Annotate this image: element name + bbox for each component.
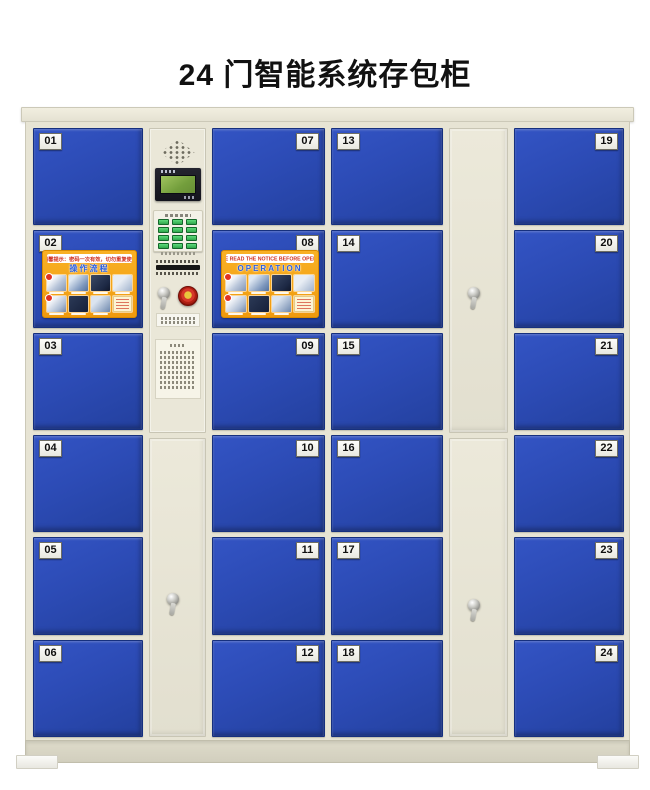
door-number-plate: 20: [595, 235, 618, 252]
sticker-step-grid: [226, 275, 314, 312]
locker-door-07: 07: [212, 128, 325, 225]
door-number-plate: 17: [337, 542, 360, 559]
key-lock-icon: [167, 593, 179, 605]
locker-cabinet: 0102温馨提示：密码一次有效，切勿重复使用操作流程030405060708PL…: [25, 107, 630, 763]
door-number-plate: 18: [337, 645, 360, 662]
keypad-caption-text: [165, 214, 191, 217]
numeric-keypad: [153, 210, 203, 252]
sticker-title: OPERATION: [226, 264, 314, 274]
panel-key-lock-icon: [158, 287, 170, 299]
locker-door-23: 23: [514, 537, 624, 634]
lock-and-button-row: [156, 283, 200, 313]
barcode-text-line: [156, 260, 200, 263]
notice-text-line: [160, 381, 196, 384]
sticker-notice-tile: [294, 296, 314, 312]
door-number-plate: 07: [296, 133, 319, 150]
locker-column-13-18: 131415161718: [328, 128, 446, 737]
control-column-lower-door: [149, 438, 206, 737]
sticker-step-tile: [249, 275, 269, 291]
sticker-notice-tile: [113, 296, 132, 312]
notice-text-line: [160, 386, 196, 389]
step-badge-icon: [224, 273, 232, 281]
service-hotline-label: [156, 313, 200, 327]
sticker-title: 操作流程: [47, 264, 132, 274]
locker-door-20: 20: [514, 230, 624, 327]
keypad-key: [172, 243, 183, 249]
instruction-sticker: 温馨提示：密码一次有效，切勿重复使用操作流程: [42, 250, 137, 317]
door-number-plate: 21: [595, 338, 618, 355]
barcode-text-line: [156, 272, 200, 275]
notice-text-line: [160, 371, 196, 374]
control-panel: [149, 128, 206, 433]
locker-door-06: 06: [33, 640, 143, 737]
locker-door-02: 02温馨提示：密码一次有效，切勿重复使用操作流程: [33, 230, 143, 327]
door-number-plate: 24: [595, 645, 618, 662]
usage-notice-label: [155, 339, 201, 399]
locker-door-05: 05: [33, 537, 143, 634]
door-number-plate: 15: [337, 338, 360, 355]
sticker-step-tile: [272, 296, 292, 312]
locker-door-22: 22: [514, 435, 624, 532]
sticker-step-tile: [47, 275, 66, 291]
sticker-header: 温馨提示：密码一次有效，切勿重复使用: [47, 254, 132, 263]
locker-column-01-06: 0102温馨提示：密码一次有效，切勿重复使用操作流程03040506: [30, 128, 146, 737]
keypad-key: [158, 235, 169, 241]
locker-door-19: 19: [514, 128, 624, 225]
service-text-line: [161, 317, 195, 320]
key-lock-icon: [468, 599, 480, 611]
door-number-plate: 22: [595, 440, 618, 457]
door-number-plate: 04: [39, 440, 62, 457]
keypad-key: [158, 227, 169, 233]
emergency-stop-button: [178, 286, 198, 306]
cabinet-foot-left: [16, 755, 58, 769]
sticker-step-tile: [249, 296, 269, 312]
door-number-plate: 13: [337, 133, 360, 150]
page-title: 24 门智能系统存包柜: [0, 50, 650, 94]
sticker-step-tile: [47, 296, 66, 312]
locker-door-04: 04: [33, 435, 143, 532]
sticker-header-text: 温馨提示：密码一次有效，切勿重复使用: [47, 255, 132, 263]
lcd-brand-text: [184, 196, 196, 199]
locker-door-10: 10: [212, 435, 325, 532]
key-lock-icon: [468, 287, 480, 299]
cabinet-base: [25, 740, 630, 763]
cabinet-foot-right: [597, 755, 639, 769]
sticker-step-tile: [91, 275, 110, 291]
door-number-plate: 01: [39, 133, 62, 150]
sticker-step-grid: [47, 275, 132, 312]
door-number-plate: 16: [337, 440, 360, 457]
keypad-key: [186, 219, 197, 225]
keypad-key: [172, 227, 183, 233]
door-number-plate: 10: [296, 440, 319, 457]
locker-door-13: 13: [331, 128, 443, 225]
barcode-label: [156, 258, 200, 277]
notice-title-line: [170, 344, 186, 347]
door-number-plate: 12: [296, 645, 319, 662]
sticker-header-text: PLEASE READ THE NOTICE BEFORE OPERATION: [226, 256, 314, 262]
locker-door-14: 14: [331, 230, 443, 327]
service-door-lower: [449, 438, 508, 737]
lcd-display: [155, 168, 201, 201]
door-number-plate: 11: [296, 542, 319, 559]
locker-door-09: 09: [212, 333, 325, 430]
lcd-caption-text: [161, 170, 177, 173]
locker-door-11: 11: [212, 537, 325, 634]
sticker-step-tile: [272, 275, 292, 291]
locker-door-12: 12: [212, 640, 325, 737]
keypad-key: [172, 219, 183, 225]
lcd-screen: [160, 175, 196, 194]
notice-text-line: [160, 366, 196, 369]
door-number-plate: 05: [39, 542, 62, 559]
sticker-step-tile: [113, 275, 132, 291]
sticker-step-tile: [69, 296, 88, 312]
instruction-sticker: PLEASE READ THE NOTICE BEFORE OPERATIONO…: [221, 250, 319, 317]
door-number-plate: 06: [39, 645, 62, 662]
notice-text-line: [160, 361, 196, 364]
service-door-upper: [449, 128, 508, 433]
sticker-step-tile: [226, 296, 246, 312]
door-number-plate: 14: [337, 235, 360, 252]
locker-door-16: 16: [331, 435, 443, 532]
locker-column-07-12: 0708PLEASE READ THE NOTICE BEFORE OPERAT…: [209, 128, 328, 737]
sticker-step-tile: [69, 275, 88, 291]
keypad-key: [186, 235, 197, 241]
notice-text-line: [160, 356, 196, 359]
sticker-step-tile: [294, 275, 314, 291]
keypad-key: [172, 235, 183, 241]
door-number-plate: 23: [595, 542, 618, 559]
keypad-key: [158, 243, 169, 249]
step-badge-icon: [45, 273, 53, 281]
step-badge-icon: [224, 294, 232, 302]
sticker-header: PLEASE READ THE NOTICE BEFORE OPERATION: [226, 254, 314, 263]
barcode-icon: [156, 265, 200, 270]
cabinet-top-cap: [21, 107, 634, 122]
door-number-plate: 03: [39, 338, 62, 355]
keypad-key: [186, 243, 197, 249]
door-number-plate: 19: [595, 133, 618, 150]
locker-door-21: 21: [514, 333, 624, 430]
keypad-keys: [154, 219, 202, 249]
sticker-step-tile: [91, 296, 110, 312]
keypad-key: [158, 219, 169, 225]
locker-door-01: 01: [33, 128, 143, 225]
door-number-plate: 09: [296, 338, 319, 355]
locker-door-18: 18: [331, 640, 443, 737]
locker-door-08: 08PLEASE READ THE NOTICE BEFORE OPERATIO…: [212, 230, 325, 327]
step-badge-icon: [45, 294, 53, 302]
notice-text-line: [160, 376, 196, 379]
sticker-step-tile: [226, 275, 246, 291]
keypad-key: [186, 227, 197, 233]
locker-door-15: 15: [331, 333, 443, 430]
locker-door-17: 17: [331, 537, 443, 634]
locker-door-24: 24: [514, 640, 624, 737]
keypad-note-text: [161, 252, 195, 255]
speaker-grill-icon: [161, 139, 195, 166]
service-text-line: [161, 321, 195, 324]
cabinet-body: 0102温馨提示：密码一次有效，切勿重复使用操作流程030405060708PL…: [25, 122, 630, 740]
locker-door-03: 03: [33, 333, 143, 430]
control-column: [146, 128, 209, 737]
product-page: 24 门智能系统存包柜 0102温馨提示：密码一次有效，切勿重复使用操作流程03…: [0, 0, 650, 790]
service-door-column: [446, 128, 511, 737]
locker-column-19-24: 192021222324: [511, 128, 627, 737]
notice-text-line: [160, 351, 196, 354]
